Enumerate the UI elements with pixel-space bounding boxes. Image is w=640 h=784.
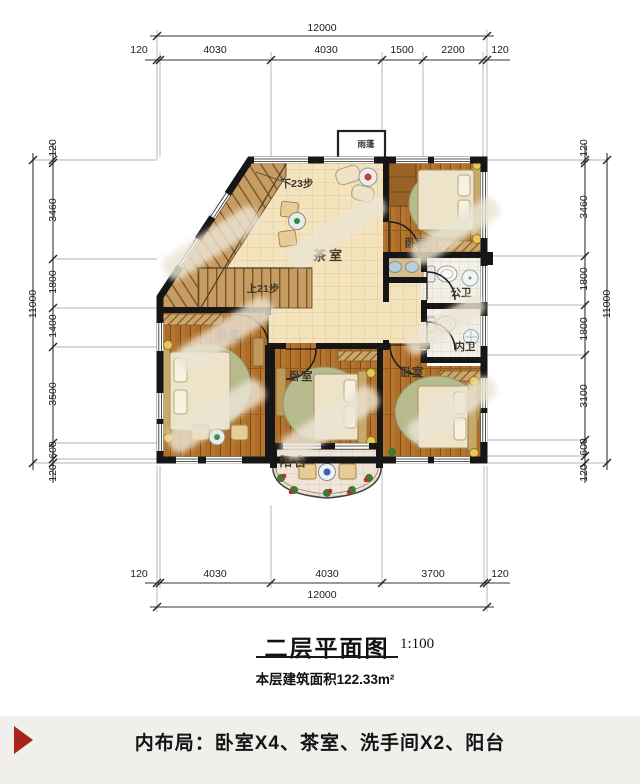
dim-right-total: 11000	[601, 282, 613, 326]
dim-left-total: 11000	[27, 282, 39, 326]
dim-top-seg-2: 4030	[304, 44, 348, 56]
title-underline	[256, 656, 398, 658]
room-label-bedroom-br: 卧室	[382, 364, 442, 380]
dim-top-seg-1: 4030	[193, 44, 237, 56]
dim-bottom-seg-4: 120	[478, 568, 522, 580]
floor-plan-page: 12000 120 4030 4030 1500 2200 120 120 40…	[0, 0, 640, 784]
dim-bottom-seg-0: 120	[117, 568, 161, 580]
floor-plan-drawing	[0, 0, 640, 784]
dim-top-seg-5: 120	[478, 44, 522, 56]
dim-left-seg-2: 1800	[47, 260, 59, 304]
red-arrow-icon	[14, 726, 33, 754]
dim-top-total: 12000	[292, 22, 352, 34]
room-label-balcony: 阳台	[264, 451, 324, 470]
footer-layout-text: 内布局：卧室X4、茶室、洗手间X2、阳台	[70, 728, 570, 755]
room-label-tea-room: 茶室	[299, 245, 359, 264]
dim-right-seg-0: 120	[578, 126, 590, 170]
footer-bar: 内布局：卧室X4、茶室、洗手间X2、阳台	[0, 716, 640, 784]
dim-left-seg-3: 1400	[47, 304, 59, 348]
dim-bottom-total: 12000	[292, 589, 352, 601]
floor-area-note: 本层建筑面积122.33m²	[225, 668, 425, 688]
drawing-scale: 1:100	[400, 636, 460, 653]
dim-left-seg-1: 3460	[47, 188, 59, 232]
dim-bottom-seg-2: 4030	[305, 568, 349, 580]
stairs-up-label: 上21步	[233, 281, 293, 296]
corridor-pocket-floor	[383, 280, 427, 350]
stairs-down-label: 下23步	[267, 176, 327, 191]
dim-top-seg-4: 2200	[431, 44, 475, 56]
dim-left-seg-4: 3500	[47, 372, 59, 416]
dim-left-seg-6: 120	[47, 451, 59, 495]
room-label-public-bath: 公卫	[431, 285, 491, 300]
room-label-private-bath: 内卫	[435, 339, 495, 354]
dim-right-seg-1: 3460	[578, 185, 590, 229]
dim-bottom-seg-1: 4030	[193, 568, 237, 580]
dim-right-seg-6: 120	[578, 451, 590, 495]
dim-right-seg-4: 3100	[578, 374, 590, 418]
room-label-bedroom-left: 卧室	[198, 327, 258, 343]
room-label-rain-canopy: 雨蓬	[346, 138, 386, 150]
dim-left-seg-0: 120	[47, 126, 59, 170]
dim-top-seg-3: 1500	[380, 44, 424, 56]
dim-right-seg-2: 1800	[578, 257, 590, 301]
room-label-bedroom-mid: 卧室	[271, 368, 331, 384]
flue-stub	[487, 252, 493, 265]
room-label-bedroom-tr: 卧室	[386, 235, 446, 251]
dim-right-seg-3: 1800	[578, 307, 590, 351]
dim-top-seg-0: 120	[117, 44, 161, 56]
dim-bottom-seg-3: 3700	[411, 568, 455, 580]
